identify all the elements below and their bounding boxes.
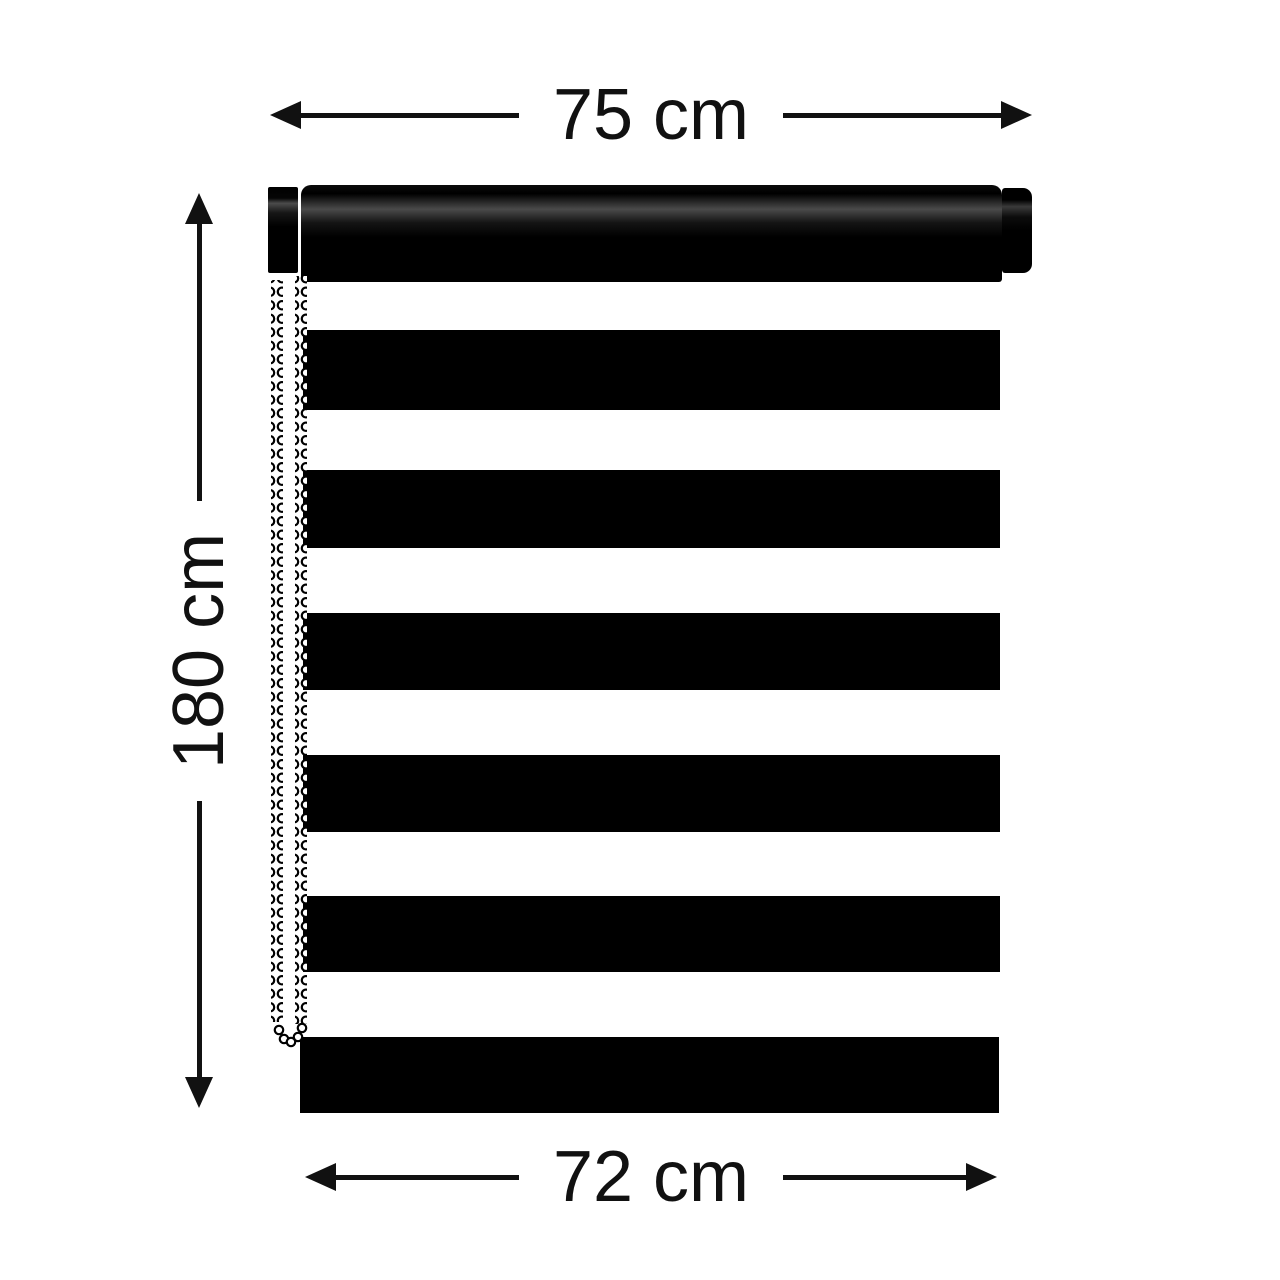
- right-end-cap: [1002, 188, 1032, 273]
- left-mounting-bracket: [268, 187, 298, 273]
- arrow-down-icon: [185, 1077, 213, 1108]
- fabric-stripe: [303, 330, 1000, 410]
- height-label: 180 cm: [163, 532, 235, 768]
- top-width-dimension: 75 cm: [270, 87, 1032, 143]
- roller-blind-dimension-diagram: 75 cm 180 cm: [0, 0, 1280, 1280]
- arrow-left-icon: [270, 101, 301, 129]
- arrow-right-icon: [966, 1163, 997, 1191]
- bottom-width-dimension: 72 cm: [305, 1149, 997, 1205]
- dimension-line: [783, 1175, 966, 1180]
- fabric-stripe: [303, 470, 1000, 548]
- roller-tube: [301, 185, 1002, 282]
- dimension-line: [197, 224, 202, 501]
- dimension-line: [336, 1175, 519, 1180]
- fabric-stripe: [303, 613, 1000, 690]
- dimension-line: [197, 801, 202, 1078]
- bottom-width-label: 72 cm: [553, 1141, 749, 1213]
- height-dimension: 180 cm: [171, 193, 227, 1108]
- dimension-line: [301, 113, 519, 118]
- chain-strand-left: [271, 280, 283, 1022]
- dimension-line: [783, 113, 1001, 118]
- fabric-stripe: [303, 896, 1000, 972]
- bottom-rail: [300, 1037, 999, 1113]
- arrow-right-icon: [1001, 101, 1032, 129]
- fabric-stripe: [303, 755, 1000, 832]
- arrow-left-icon: [305, 1163, 336, 1191]
- top-width-label: 75 cm: [553, 79, 749, 151]
- arrow-up-icon: [185, 193, 213, 224]
- height-label-box: 180 cm: [171, 501, 227, 801]
